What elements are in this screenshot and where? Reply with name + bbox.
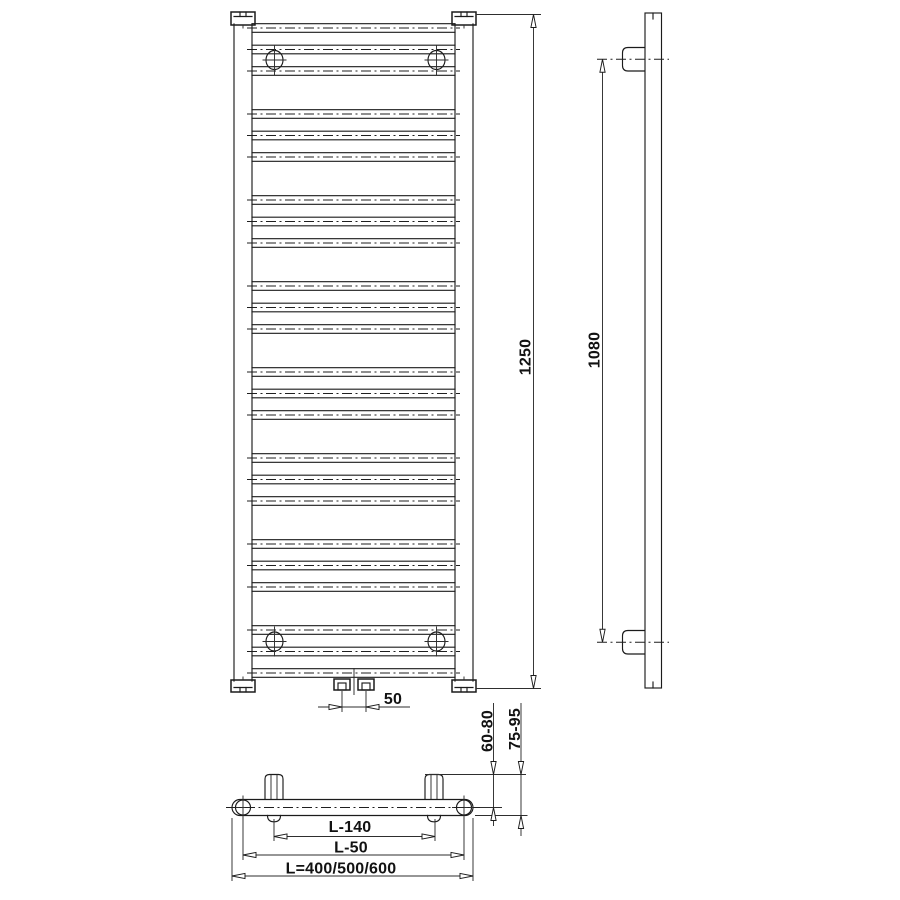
collector-axis-span-label: L-50 [334,840,368,857]
front-elevation-view [231,12,476,695]
overall-height-label: 1250 [518,339,535,375]
radiator-technical-drawing: 1250 1080 50 60-80 75-95 L-140 L-50 L=40… [0,0,900,900]
valve-spacing-label: 50 [384,691,402,708]
dimension-lines-layer [232,15,605,882]
overall-width-label: L=400/500/600 [286,861,397,878]
wall-to-tube-axis-label: 60-80 [480,710,497,752]
plan-top-view [226,775,528,822]
bracket-width-span-label: L-140 [329,819,372,836]
wall-to-front-face-label: 75-95 [507,708,524,750]
bracket-height-span-label: 1080 [587,332,604,368]
dimension-labels-layer: 1250 1080 50 60-80 75-95 L-140 L-50 L=40… [286,332,604,878]
side-profile-view [597,13,669,688]
